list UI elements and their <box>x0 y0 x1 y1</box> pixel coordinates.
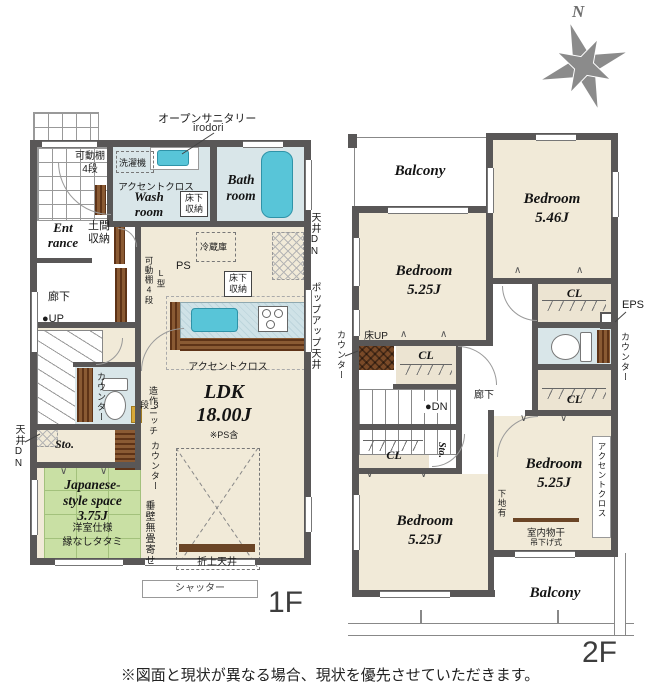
balcony-bottom-label: Balcony <box>505 585 605 602</box>
folding-door-icon: ∨ <box>420 470 427 480</box>
floor-up-label: 床UP <box>364 327 388 342</box>
leader-line <box>612 310 628 324</box>
wall <box>352 424 462 430</box>
closet-rod <box>542 300 606 311</box>
wall <box>490 278 618 284</box>
folding-door-icon: ∧ <box>514 266 521 276</box>
toilet-counter-wood <box>597 330 610 363</box>
toilet-counter-2f-label: カウンター <box>619 332 632 384</box>
window <box>353 310 360 336</box>
closet-rod <box>400 364 452 375</box>
window <box>612 172 619 217</box>
balcony-rail-post <box>557 610 559 624</box>
window <box>353 238 360 286</box>
door-arc <box>502 286 537 321</box>
drying-rod-bar <box>513 518 579 522</box>
floorplan-page: N <box>0 0 660 697</box>
wall <box>525 410 618 416</box>
window <box>380 591 450 598</box>
wall <box>532 322 618 328</box>
folding-door-icon: ∨ <box>366 470 373 480</box>
bedroom-c-label: Bedroom 5.25J <box>370 512 480 550</box>
balcony-top-label: Balcony <box>370 163 470 180</box>
balcony-rail-right <box>614 553 626 635</box>
door-arc <box>458 346 497 385</box>
cl-left-label: CL <box>359 448 429 463</box>
drying-type-label: 吊下げ式 <box>513 537 579 548</box>
wall <box>348 134 357 148</box>
window <box>515 551 575 558</box>
floorplan-2f: Balcony Bedroom 5.46J Bedroom 5.25J Bedr… <box>0 0 660 697</box>
bedroom-b-label: Bedroom 5.25J <box>378 262 470 300</box>
folding-door-icon: ∨ <box>520 414 527 424</box>
wall <box>488 410 494 597</box>
wall-backing-label: 下地有 <box>496 489 508 527</box>
leader-line <box>344 348 360 358</box>
toilet-bowl <box>551 334 580 360</box>
hallway-2f-label: 廊下 <box>474 386 494 401</box>
folding-door-icon: ∧ <box>576 266 583 276</box>
window <box>536 134 576 141</box>
cl-right-top-label: CL <box>538 286 611 301</box>
cl-right-bottom-label: CL <box>538 392 611 407</box>
bedroom-d-label: Bedroom 5.25J <box>500 455 608 493</box>
dn-label: ●DN <box>424 401 449 413</box>
window <box>487 168 494 213</box>
window <box>353 495 360 550</box>
balcony-rail-post <box>420 610 422 624</box>
wall <box>393 384 462 389</box>
balcony-door-window <box>388 207 468 214</box>
cl-center-label: CL <box>396 348 456 363</box>
folding-door-icon: ∨ <box>560 414 567 424</box>
folding-door-icon: ∧ <box>440 330 447 340</box>
storage-2f-label: Sto. <box>436 432 447 468</box>
balcony-rail-bottom <box>348 623 634 636</box>
folding-door-icon: ∧ <box>400 330 407 340</box>
accent-cloth-2f-label: アクセントクロス <box>596 442 608 532</box>
wall <box>486 133 493 346</box>
floor-up-step <box>356 344 394 370</box>
wall <box>532 364 618 370</box>
disclaimer-text: ※図面と現状が異なる場合、現状を優先させていただきます。 <box>0 664 660 685</box>
bedroom-a-label: Bedroom 5.46J <box>497 190 607 228</box>
toilet-tank <box>580 332 592 362</box>
